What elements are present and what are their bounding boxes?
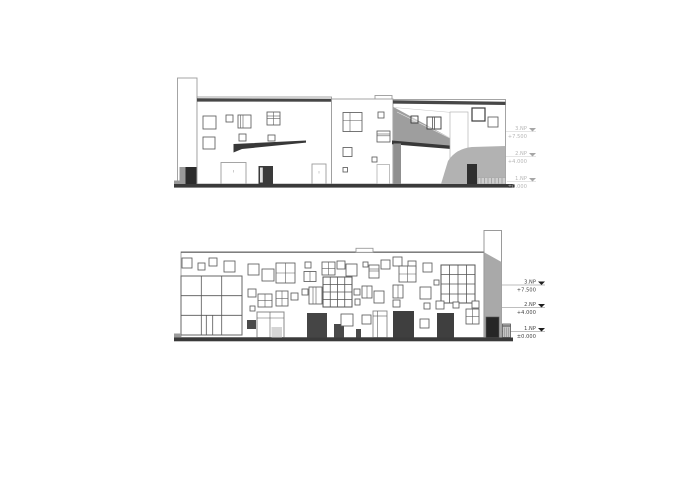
door-middle bbox=[377, 165, 390, 185]
wall-column bbox=[394, 144, 402, 185]
garage-door bbox=[221, 163, 246, 185]
level-value: +7.500 bbox=[517, 288, 536, 294]
window-mullioned bbox=[309, 287, 322, 304]
window bbox=[488, 117, 498, 127]
window bbox=[362, 315, 371, 324]
level-marker-icon bbox=[538, 304, 545, 308]
window bbox=[436, 301, 444, 309]
level-marker-icon bbox=[538, 282, 545, 286]
window bbox=[393, 257, 402, 266]
window bbox=[472, 108, 485, 121]
railing-strip bbox=[478, 178, 506, 185]
window bbox=[411, 116, 418, 123]
door-white bbox=[312, 164, 326, 184]
window bbox=[239, 134, 246, 141]
window-mullioned bbox=[362, 286, 372, 298]
door-dark bbox=[437, 313, 454, 338]
window-transom bbox=[369, 265, 379, 278]
window bbox=[420, 287, 431, 299]
level-marker-icon bbox=[529, 153, 536, 157]
window bbox=[262, 269, 274, 281]
window bbox=[343, 168, 348, 173]
roof-band-left bbox=[197, 98, 332, 102]
level-label: 2.NP bbox=[524, 302, 536, 308]
curb bbox=[174, 334, 181, 338]
level-marker-icon bbox=[529, 128, 536, 132]
window bbox=[268, 135, 275, 141]
door-dark-large bbox=[393, 311, 414, 338]
window bbox=[424, 303, 430, 309]
window bbox=[453, 302, 459, 308]
level-label: 1.NP bbox=[524, 326, 536, 332]
window bbox=[209, 258, 217, 266]
window bbox=[302, 289, 308, 295]
level-label: 2.NP bbox=[515, 151, 527, 157]
window bbox=[343, 148, 352, 157]
window bbox=[423, 263, 432, 272]
utility-box bbox=[503, 324, 511, 338]
window bbox=[291, 293, 298, 300]
window bbox=[337, 261, 345, 269]
door-dark bbox=[247, 320, 256, 329]
window bbox=[248, 264, 259, 275]
window-grid-shadow bbox=[427, 117, 441, 129]
top-elevation: 3.NP +7.500 2.NP +4.000 1.NP ±0.000 bbox=[174, 78, 536, 190]
vent-dark bbox=[356, 329, 361, 338]
window bbox=[226, 115, 233, 122]
window bbox=[434, 280, 439, 285]
window-grid bbox=[276, 291, 288, 306]
window-mullioned bbox=[304, 272, 316, 282]
level-label: 3.NP bbox=[515, 126, 527, 132]
level-value: ±0.000 bbox=[517, 334, 536, 340]
window bbox=[250, 306, 255, 311]
window bbox=[224, 261, 235, 272]
window bbox=[381, 260, 390, 269]
window-large-grid bbox=[323, 277, 352, 307]
window-grid bbox=[466, 309, 479, 324]
window-transom bbox=[377, 131, 390, 142]
window bbox=[248, 289, 256, 297]
ground-line bbox=[174, 338, 513, 342]
door-dark bbox=[307, 313, 327, 338]
roof-step bbox=[356, 248, 373, 252]
window-mullioned bbox=[393, 285, 403, 298]
level-label: 1.NP bbox=[515, 176, 527, 182]
elevation-drawing: 3.NP +7.500 2.NP +4.000 1.NP ±0.000 bbox=[0, 0, 700, 495]
window bbox=[363, 262, 368, 267]
window bbox=[198, 263, 205, 270]
tower-door bbox=[486, 317, 499, 338]
window-grid bbox=[399, 266, 416, 282]
level-marker-icon bbox=[529, 178, 536, 182]
window bbox=[374, 291, 384, 303]
door-shadow bbox=[180, 167, 186, 184]
window bbox=[378, 112, 384, 118]
window bbox=[203, 116, 216, 129]
bottom-level-markers: 3.NP +7.500 2.NP +4.000 1.NP ±0.000 bbox=[517, 279, 545, 340]
level-value: +4.000 bbox=[508, 159, 527, 165]
entrance-door bbox=[373, 311, 387, 338]
window bbox=[355, 299, 360, 305]
level-value: ±0.000 bbox=[508, 184, 527, 190]
window bbox=[420, 319, 429, 328]
bottom-elevation: 3.NP +7.500 2.NP +4.000 1.NP ±0.000 bbox=[174, 231, 545, 342]
window-grid bbox=[343, 113, 362, 132]
curtain-wall-grid bbox=[181, 276, 242, 335]
window bbox=[305, 262, 311, 268]
window bbox=[393, 300, 400, 307]
door-dark-tower bbox=[186, 167, 197, 184]
level-value: +7.500 bbox=[508, 134, 527, 140]
window-large-grid bbox=[441, 265, 475, 303]
level-marker-icon bbox=[538, 328, 545, 332]
door-dark-right bbox=[467, 164, 477, 184]
window bbox=[182, 258, 192, 268]
window bbox=[341, 314, 353, 326]
window-mullioned bbox=[238, 115, 251, 128]
window bbox=[354, 289, 360, 295]
window bbox=[472, 301, 479, 308]
window-grid bbox=[276, 263, 295, 283]
window-grid bbox=[258, 294, 272, 307]
drawing-sheet: 3.NP +7.500 2.NP +4.000 1.NP ±0.000 bbox=[0, 0, 700, 495]
ground-line bbox=[174, 184, 515, 188]
door-gap bbox=[260, 168, 263, 183]
window bbox=[372, 157, 377, 162]
window-grid bbox=[322, 262, 335, 275]
window-grid bbox=[267, 112, 280, 125]
level-value: +4.000 bbox=[517, 310, 536, 316]
top-level-markers: 3.NP +7.500 2.NP +4.000 1.NP ±0.000 bbox=[508, 126, 536, 190]
entrance-door bbox=[257, 312, 284, 338]
level-label: 3.NP bbox=[524, 279, 536, 285]
window bbox=[346, 264, 357, 276]
curb bbox=[174, 181, 180, 185]
window bbox=[203, 137, 215, 149]
